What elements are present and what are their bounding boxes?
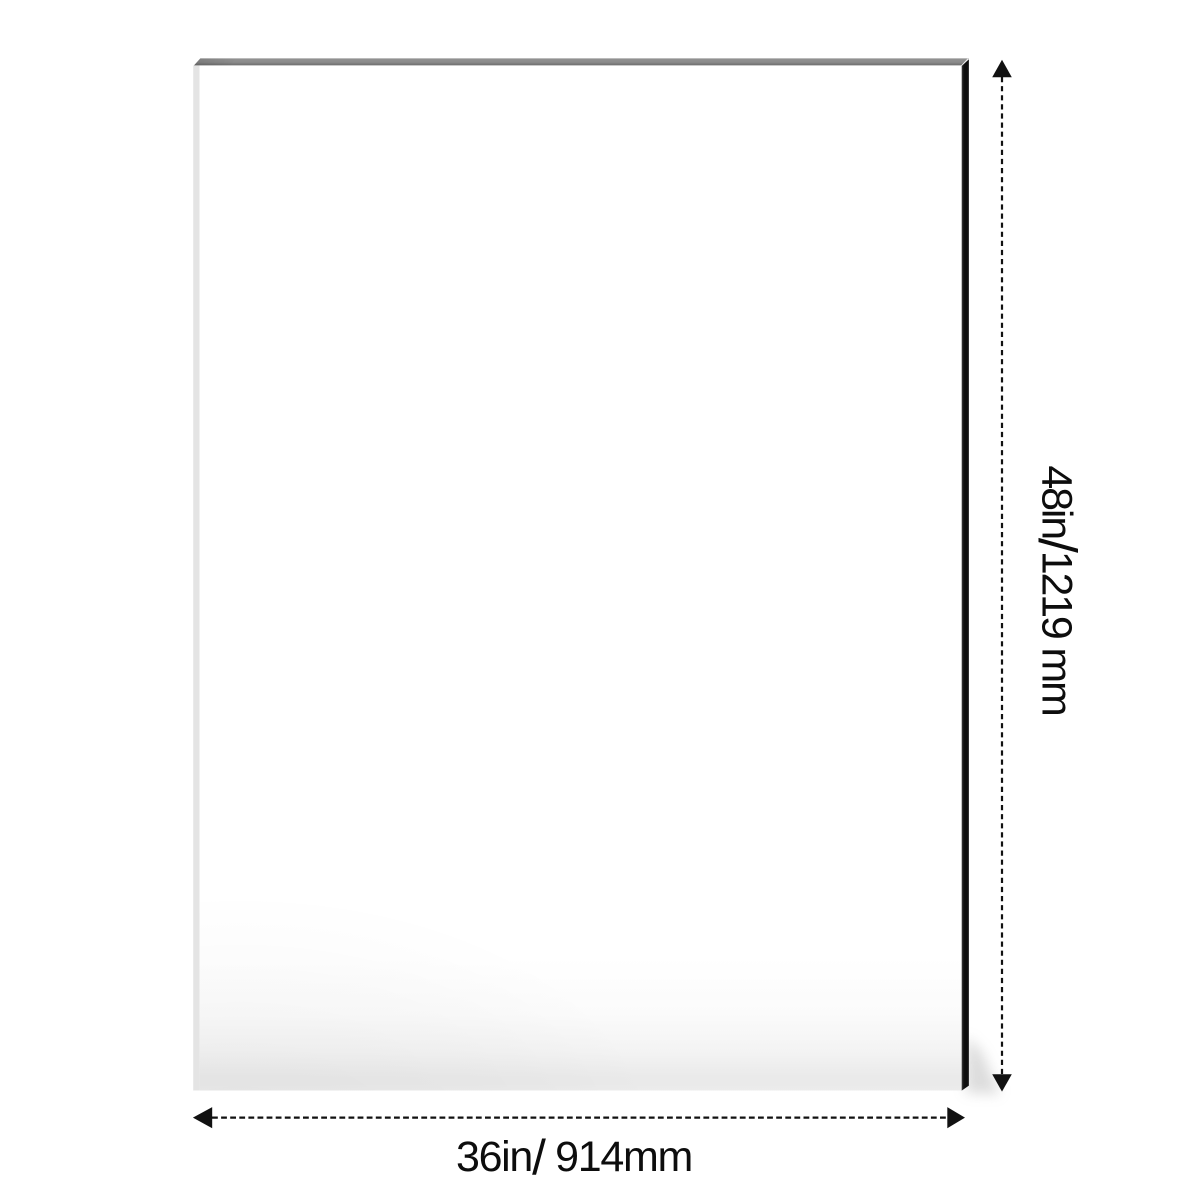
svg-text:48in/1219 mm: 48in/1219 mm [1027, 465, 1087, 714]
svg-text:36in/ 914mm: 36in/ 914mm [456, 1130, 692, 1185]
